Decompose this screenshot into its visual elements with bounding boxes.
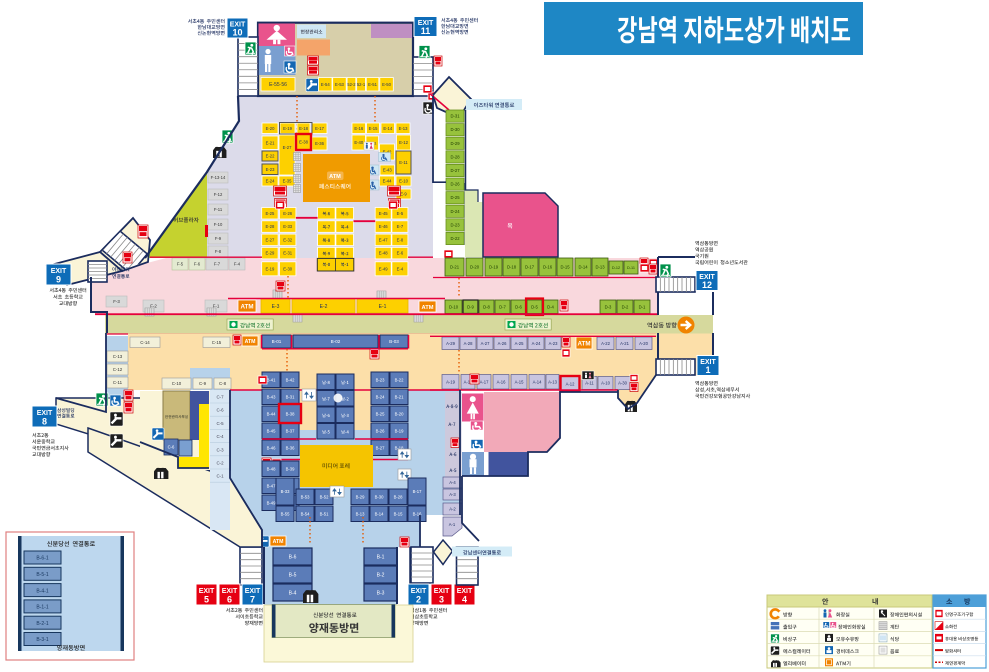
svg-text:E-55·56: E-55·56 — [269, 82, 287, 88]
svg-text:E-50: E-50 — [382, 82, 392, 87]
svg-text:E-21: E-21 — [266, 140, 276, 145]
svg-text:E-43: E-43 — [383, 168, 393, 173]
svg-text:C-14: C-14 — [140, 340, 150, 345]
svg-text:E-3: E-3 — [272, 304, 280, 310]
svg-text:F-5: F-5 — [177, 262, 184, 267]
svg-text:E-2: E-2 — [320, 304, 328, 310]
svg-text:F-11: F-11 — [214, 207, 223, 212]
svg-text:C-3: C-3 — [216, 447, 224, 452]
svg-text:B-43: B-43 — [267, 394, 277, 399]
svg-text:B-23: B-23 — [376, 377, 386, 382]
svg-text:E-17: E-17 — [315, 126, 325, 131]
svg-text:B-49: B-49 — [267, 500, 277, 505]
svg-text:C-8: C-8 — [219, 381, 227, 386]
svg-text:A-4: A-4 — [449, 480, 456, 485]
svg-text:E-1: E-1 — [379, 304, 387, 310]
svg-text:E-27: E-27 — [265, 237, 275, 242]
svg-text:D-29: D-29 — [450, 141, 460, 146]
svg-text:10: 10 — [232, 28, 242, 38]
svg-text:C-15: C-15 — [212, 340, 222, 345]
svg-text:B-47: B-47 — [267, 483, 277, 488]
svg-text:D-22: D-22 — [450, 236, 460, 241]
svg-text:1: 1 — [705, 365, 710, 375]
svg-text:A-15: A-15 — [515, 379, 525, 384]
svg-text:A-22: A-22 — [601, 341, 611, 346]
svg-text:E-27: E-27 — [283, 145, 293, 150]
svg-text:8: 8 — [42, 416, 47, 426]
svg-text:E-22: E-22 — [266, 154, 276, 159]
svg-text:D-14: D-14 — [578, 265, 588, 270]
svg-text:C-13: C-13 — [113, 354, 123, 359]
svg-text:C-6: C-6 — [216, 408, 224, 413]
svg-text:B-27: B-27 — [376, 445, 386, 450]
svg-text:D-3: D-3 — [605, 304, 612, 309]
svg-text:E-8: E-8 — [397, 237, 404, 242]
svg-text:B-38: B-38 — [286, 412, 296, 417]
svg-text:D-26: D-26 — [450, 182, 460, 187]
svg-text:E-38: E-38 — [299, 140, 309, 145]
svg-text:C-7: C-7 — [216, 395, 224, 400]
svg-text:ATM: ATM — [240, 304, 253, 311]
svg-text:B-33: B-33 — [281, 489, 291, 494]
svg-text:D-24: D-24 — [450, 209, 460, 214]
svg-text:B-51: B-51 — [320, 511, 330, 516]
svg-text:E-6: E-6 — [397, 251, 404, 256]
svg-text:D-11: D-11 — [627, 266, 635, 270]
svg-text:E-15: E-15 — [369, 126, 379, 131]
svg-text:C-12: C-12 — [113, 367, 123, 372]
svg-text:D-4: D-4 — [547, 304, 554, 309]
svg-text:B-3: B-3 — [377, 590, 385, 596]
svg-text:A-25: A-25 — [515, 341, 525, 346]
svg-text:E-44: E-44 — [383, 179, 393, 184]
svg-text:E-47: E-47 — [379, 237, 389, 242]
svg-text:6: 6 — [227, 594, 232, 604]
svg-text:B-31: B-31 — [286, 394, 296, 399]
svg-text:E-14: E-14 — [383, 126, 393, 131]
svg-text:52-2: 52-2 — [347, 82, 356, 87]
svg-text:A-26: A-26 — [498, 341, 508, 346]
svg-text:A-19: A-19 — [446, 379, 456, 384]
svg-text:E-32: E-32 — [283, 237, 293, 242]
svg-text:E-53: E-53 — [335, 82, 345, 87]
svg-text:D-25: D-25 — [450, 195, 460, 200]
svg-text:E-48: E-48 — [379, 251, 389, 256]
svg-text:B-4: B-4 — [289, 590, 297, 596]
svg-text:A-2: A-2 — [449, 507, 456, 512]
svg-text:A-10: A-10 — [601, 381, 611, 386]
svg-text:D-15: D-15 — [560, 265, 570, 270]
svg-text:C-1: C-1 — [216, 474, 224, 479]
svg-text:E-19: E-19 — [265, 266, 275, 271]
svg-text:A-30: A-30 — [618, 381, 628, 386]
svg-text:E-46: E-46 — [379, 224, 389, 229]
svg-text:B-03: B-03 — [389, 339, 399, 344]
svg-text:E-40: E-40 — [354, 140, 364, 145]
svg-text:E-49: E-49 — [379, 266, 389, 271]
svg-text:D-20: D-20 — [470, 265, 480, 270]
svg-text:D-2: D-2 — [622, 304, 629, 309]
svg-text:D-18: D-18 — [507, 265, 517, 270]
svg-text:B-42: B-42 — [286, 377, 296, 382]
svg-text:D-12: D-12 — [612, 266, 620, 270]
svg-text:C-4: C-4 — [216, 434, 224, 439]
svg-text:E-45: E-45 — [379, 211, 389, 216]
svg-text:E-4: E-4 — [397, 266, 404, 271]
svg-text:E-12: E-12 — [399, 140, 409, 145]
svg-text:B-53: B-53 — [301, 494, 311, 499]
svg-text:B-1-1: B-1-1 — [36, 605, 48, 611]
svg-text:B-29: B-29 — [356, 494, 366, 499]
svg-text:B-44: B-44 — [267, 411, 277, 416]
svg-text:3: 3 — [439, 594, 444, 604]
svg-text:D-6: D-6 — [515, 304, 522, 309]
svg-text:D-27: D-27 — [450, 168, 460, 173]
svg-text:C-5: C-5 — [216, 421, 224, 426]
svg-text:E-54: E-54 — [321, 82, 331, 87]
svg-text:F-10: F-10 — [214, 222, 223, 227]
svg-text:E-28: E-28 — [265, 224, 275, 229]
svg-text:E-16: E-16 — [354, 126, 364, 131]
svg-text:B-3-1: B-3-1 — [36, 637, 48, 643]
svg-text:B-01: B-01 — [272, 339, 282, 344]
svg-text:E-5: E-5 — [397, 211, 404, 216]
svg-text:D-31: D-31 — [450, 114, 460, 119]
svg-text:B-5: B-5 — [289, 572, 297, 578]
svg-text:A-20: A-20 — [639, 341, 649, 346]
svg-text:E-23: E-23 — [266, 167, 276, 172]
svg-text:D-8: D-8 — [483, 304, 490, 309]
svg-text:B-6: B-6 — [289, 554, 297, 560]
svg-text:ATM: ATM — [273, 539, 284, 545]
svg-text:B-5-1: B-5-1 — [36, 572, 48, 578]
svg-text:A-1: A-1 — [449, 522, 456, 527]
svg-text:B-28: B-28 — [394, 494, 404, 499]
svg-text:A-11: A-11 — [585, 381, 594, 386]
svg-text:E-30: E-30 — [283, 266, 293, 271]
svg-text:F-4: F-4 — [234, 262, 241, 267]
svg-text:B-41: B-41 — [267, 377, 277, 382]
svg-text:E-31: E-31 — [283, 251, 293, 256]
svg-text:A-16: A-16 — [497, 379, 507, 384]
svg-text:5: 5 — [204, 594, 209, 604]
svg-text:B-54: B-54 — [301, 511, 311, 516]
svg-text:F-7: F-7 — [214, 262, 221, 267]
svg-text:D-13: D-13 — [595, 265, 605, 270]
svg-text:B-39: B-39 — [286, 466, 296, 471]
svg-text:D-28: D-28 — [450, 154, 460, 159]
svg-text:A-13: A-13 — [548, 379, 558, 384]
svg-text:D-16: D-16 — [543, 265, 553, 270]
svg-text:B-17: B-17 — [413, 489, 423, 494]
svg-text:D-23: D-23 — [450, 222, 460, 227]
svg-text:E-24: E-24 — [266, 179, 276, 184]
svg-text:F-3: F-3 — [113, 299, 120, 304]
svg-text:E-26: E-26 — [283, 211, 293, 216]
svg-text:E-25: E-25 — [265, 211, 275, 216]
svg-text:B-36: B-36 — [286, 445, 296, 450]
svg-text:B-19: B-19 — [395, 428, 405, 433]
svg-text:C-2: C-2 — [216, 461, 224, 466]
svg-text:ATM: ATM — [577, 341, 590, 348]
svg-text:C-9: C-9 — [199, 381, 207, 386]
svg-text:E-51: E-51 — [368, 82, 378, 87]
svg-text:D-9: D-9 — [467, 304, 474, 309]
svg-text:B-14: B-14 — [375, 511, 385, 516]
svg-text:F-9: F-9 — [215, 236, 222, 241]
svg-text:B-25: B-25 — [376, 411, 386, 416]
svg-text:C-6: C-6 — [168, 445, 175, 450]
svg-text:E-19: E-19 — [283, 126, 293, 131]
svg-text:B-02: B-02 — [331, 339, 341, 344]
svg-text:A-27: A-27 — [481, 341, 491, 346]
svg-text:52-1: 52-1 — [357, 82, 366, 87]
svg-text:B-21: B-21 — [395, 394, 405, 399]
svg-text:A-24: A-24 — [532, 341, 542, 346]
svg-text:B-37: B-37 — [286, 428, 296, 433]
svg-text:E-36: E-36 — [315, 141, 325, 146]
svg-text:A-21: A-21 — [620, 341, 630, 346]
svg-text:B-52: B-52 — [320, 494, 330, 499]
svg-text:B-22: B-22 — [395, 377, 405, 382]
svg-text:B-24: B-24 — [376, 394, 386, 399]
svg-text:E-29: E-29 — [265, 251, 275, 256]
svg-text:B-26: B-26 — [376, 428, 386, 433]
svg-text:F-8: F-8 — [215, 249, 222, 254]
svg-text:C-11: C-11 — [113, 380, 123, 385]
svg-text:D-19: D-19 — [489, 265, 499, 270]
svg-text:D-10: D-10 — [449, 304, 459, 309]
svg-text:F-12: F-12 — [214, 192, 223, 197]
svg-text:D-5: D-5 — [531, 304, 538, 309]
svg-text:B-45: B-45 — [267, 428, 277, 433]
svg-text:B-2-1: B-2-1 — [36, 621, 48, 627]
svg-text:D-1: D-1 — [639, 304, 646, 309]
svg-text:D-21: D-21 — [450, 265, 460, 270]
svg-text:B-55: B-55 — [281, 511, 291, 516]
svg-text:A-28: A-28 — [464, 341, 474, 346]
svg-text:9: 9 — [56, 274, 61, 284]
svg-text:B-2: B-2 — [377, 572, 385, 578]
svg-text:E-10: E-10 — [399, 179, 409, 184]
svg-text:A-29: A-29 — [446, 341, 456, 346]
svg-text:E-35: E-35 — [283, 179, 293, 184]
svg-text:C-10: C-10 — [172, 381, 182, 386]
svg-text:B-48: B-48 — [267, 466, 277, 471]
svg-text:E-18: E-18 — [299, 126, 309, 131]
svg-text:B-6-1: B-6-1 — [36, 556, 48, 562]
svg-text:E-9: E-9 — [400, 192, 407, 197]
svg-text:A-3: A-3 — [449, 492, 456, 497]
svg-text:D-30: D-30 — [450, 127, 460, 132]
svg-text:E-13: E-13 — [399, 126, 409, 131]
svg-text:ATM: ATM — [245, 339, 256, 345]
svg-text:F-6: F-6 — [194, 262, 201, 267]
svg-text:B-15: B-15 — [394, 511, 404, 516]
svg-text:B-20: B-20 — [395, 411, 405, 416]
svg-text:D-7: D-7 — [499, 304, 506, 309]
svg-text:F-13·14: F-13·14 — [211, 175, 226, 180]
svg-text:ATM: ATM — [329, 174, 341, 180]
svg-text:ATM: ATM — [422, 305, 434, 311]
svg-text:11: 11 — [421, 26, 431, 36]
svg-text:E-20: E-20 — [266, 126, 276, 131]
svg-text:A-17: A-17 — [480, 379, 490, 384]
svg-text:A-14: A-14 — [533, 379, 543, 384]
svg-text:B-4-1: B-4-1 — [36, 588, 48, 594]
svg-text:A-12: A-12 — [566, 382, 576, 387]
svg-text:2: 2 — [416, 594, 421, 604]
svg-text:E-7: E-7 — [397, 224, 404, 229]
svg-text:A-23: A-23 — [549, 341, 559, 346]
svg-text:B-13: B-13 — [356, 511, 366, 516]
svg-text:D-17: D-17 — [525, 265, 535, 270]
svg-text:7: 7 — [250, 594, 255, 604]
svg-text:B-46: B-46 — [267, 445, 277, 450]
svg-text:B-1: B-1 — [377, 554, 385, 560]
svg-text:E-11: E-11 — [399, 160, 408, 165]
svg-text:12: 12 — [702, 280, 712, 290]
svg-text:B-30: B-30 — [375, 494, 385, 499]
svg-text:4: 4 — [462, 594, 467, 604]
svg-text:E-33: E-33 — [283, 224, 293, 229]
